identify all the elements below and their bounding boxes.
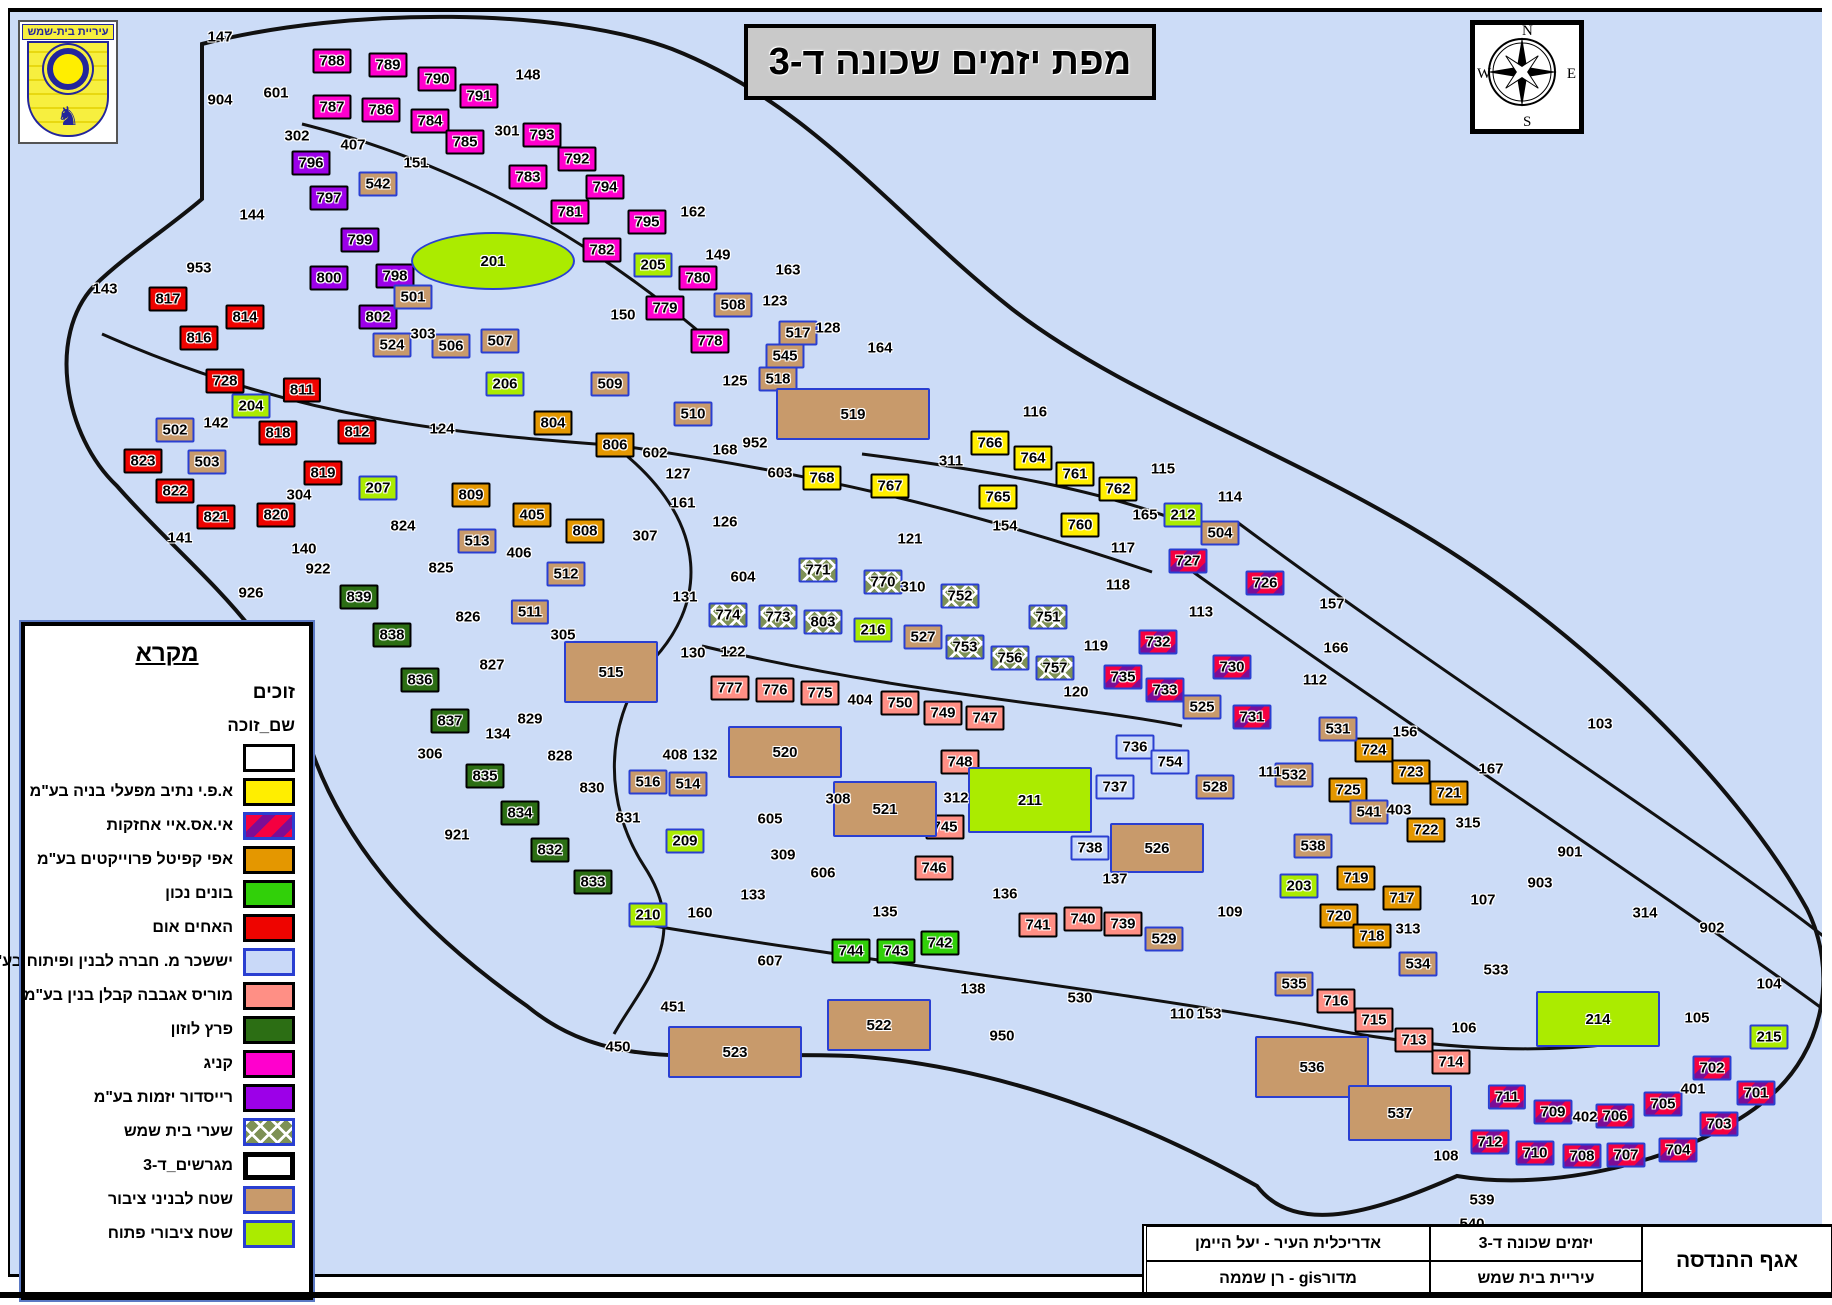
parcel-771: 771 (798, 558, 837, 583)
parcel-517: 517 (778, 321, 817, 346)
parcel-736: 736 (1115, 735, 1154, 760)
parcel-118: 118 (1106, 576, 1130, 595)
parcel-764: 764 (1013, 446, 1052, 471)
parcel-732: 732 (1138, 630, 1177, 655)
parcel-510: 510 (673, 402, 712, 427)
parcel-792: 792 (557, 147, 596, 172)
parcel-839: 839 (339, 585, 378, 610)
parcel-754: 754 (1150, 750, 1189, 775)
parcel-706: 706 (1595, 1104, 1634, 1129)
legend-entry-label: רייסדור יזמות בע"מ (94, 1089, 233, 1107)
parcel-119: 119 (1084, 637, 1108, 656)
parcel-952: 952 (742, 434, 767, 453)
parcel-716: 716 (1316, 989, 1355, 1014)
parcel-901: 901 (1557, 843, 1582, 862)
municipality-logo-caption: עיריית בית-שמש (22, 24, 114, 40)
parcel-606: 606 (810, 864, 835, 883)
legend-entry: שערי בית שמש (39, 1118, 295, 1146)
parcel-701: 701 (1736, 1081, 1775, 1106)
parcel-806: 806 (595, 433, 634, 458)
parcel-302: 302 (284, 127, 309, 146)
parcel-779: 779 (645, 296, 684, 321)
parcel-147: 147 (207, 28, 232, 47)
parcel-787: 787 (312, 95, 351, 120)
parcel-830: 830 (579, 779, 604, 798)
legend-entry-label: האחים אום (152, 919, 233, 937)
parcel-450: 450 (605, 1038, 630, 1057)
parcel-833: 833 (573, 870, 612, 895)
parcel-817: 817 (148, 287, 187, 312)
parcel-605: 605 (757, 810, 782, 829)
parcel-757: 757 (1035, 656, 1074, 681)
parcel-403: 403 (1386, 801, 1411, 820)
parcel-509: 509 (590, 372, 629, 397)
parcel-149: 149 (705, 246, 730, 265)
parcel-402: 402 (1572, 1108, 1597, 1127)
parcel-747: 747 (965, 706, 1004, 731)
legend-field-label: שם_זוכה (39, 716, 295, 736)
parcel-115: 115 (1151, 460, 1175, 479)
parcel-168: 168 (712, 441, 737, 460)
parcel-303: 303 (410, 325, 435, 344)
parcel-140: 140 (291, 540, 316, 559)
parcel-507: 507 (480, 329, 519, 354)
parcel-709: 709 (1533, 1100, 1572, 1125)
legend-entry-label: אי.אס.איי אחזקות (107, 817, 233, 835)
parcel-545: 545 (765, 344, 804, 369)
parcel-782: 782 (582, 238, 621, 263)
parcel-143: 143 (92, 280, 117, 299)
parcel-926: 926 (238, 584, 263, 603)
parcel-312: 312 (943, 789, 968, 808)
parcel-519: 519 (776, 388, 930, 440)
parcel-516: 516 (628, 770, 667, 795)
parcel-204: 204 (231, 394, 270, 419)
parcel-781: 781 (550, 200, 589, 225)
parcel-903: 903 (1527, 874, 1552, 893)
parcel-311: 311 (939, 452, 963, 471)
parcel-513: 513 (457, 529, 496, 554)
parcel-530: 530 (1067, 989, 1092, 1008)
parcel-723: 723 (1391, 760, 1430, 785)
parcel-768: 768 (802, 466, 841, 491)
parcel-767: 767 (870, 474, 909, 499)
parcel-148: 148 (515, 66, 540, 85)
parcel-515: 515 (564, 641, 658, 703)
compass-e: E (1567, 66, 1576, 83)
parcel-823: 823 (123, 449, 162, 474)
legend-entry: קניג (39, 1050, 295, 1078)
parcel-105: 105 (1684, 1009, 1709, 1028)
parcel-744: 744 (831, 939, 870, 964)
parcel-724: 724 (1354, 738, 1393, 763)
parcel-604: 604 (730, 568, 755, 587)
parcel-307: 307 (632, 527, 657, 546)
parcel-713: 713 (1394, 1028, 1433, 1053)
legend-swatch-ib (243, 948, 295, 976)
title-block-gis: מדורgis - רן שממה (1146, 1261, 1430, 1296)
parcel-760: 760 (1060, 513, 1099, 538)
legend-swatch-blank (243, 744, 295, 772)
parcel-537: 537 (1348, 1085, 1452, 1141)
parcel-103: 103 (1587, 715, 1612, 734)
parcel-165: 165 (1132, 506, 1157, 525)
parcel-154: 154 (992, 517, 1017, 536)
parcel-707: 707 (1606, 1143, 1645, 1168)
compass-s: S (1523, 114, 1531, 131)
sun-icon (47, 48, 89, 90)
parcel-803: 803 (803, 610, 842, 635)
parcel-106: 106 (1451, 1019, 1476, 1038)
parcel-151: 151 (403, 154, 428, 173)
parcel-728: 728 (205, 369, 244, 394)
legend-entry: פרץ לוזון (39, 1016, 295, 1044)
parcel-753: 753 (945, 635, 984, 660)
map-canvas: 7887897907917877867847857937927837947817… (8, 8, 1822, 1277)
parcel-206: 206 (485, 372, 524, 397)
parcel-451: 451 (660, 998, 685, 1017)
parcel-816: 816 (179, 326, 218, 351)
parcel-163: 163 (775, 261, 800, 280)
parcel-746: 746 (914, 856, 953, 881)
parcel-116: 116 (1023, 403, 1047, 422)
parcel-164: 164 (867, 339, 892, 358)
emblem-figures-icon: ♞ (56, 103, 79, 129)
legend: מקרא זוכים שם_זוכה א.פ.י נתיב מפעלי בניה… (21, 622, 313, 1300)
parcel-309: 309 (770, 846, 795, 865)
parcel-160: 160 (687, 904, 712, 923)
legend-swatch-os (243, 1220, 295, 1248)
legend-entry: מוריס אגבבה קבלן בנין בע"מ (39, 982, 295, 1010)
parcel-834: 834 (500, 801, 539, 826)
legend-swatch-plots (243, 1152, 295, 1180)
parcel-797: 797 (309, 186, 348, 211)
parcel-525: 525 (1182, 695, 1221, 720)
legend-entry-label: בונים נכון (165, 885, 233, 903)
legend-entry: אי.אס.איי אחזקות (39, 812, 295, 840)
parcel-528: 528 (1195, 775, 1234, 800)
parcel-822: 822 (155, 479, 194, 504)
parcel-796: 796 (291, 151, 330, 176)
parcel-150: 150 (610, 306, 635, 325)
parcel-538: 538 (1293, 834, 1332, 859)
parcel-773: 773 (758, 605, 797, 630)
parcel-314: 314 (1632, 904, 1657, 923)
parcel-529: 529 (1144, 927, 1183, 952)
title-block-department: אגף ההנדסה (1642, 1226, 1832, 1296)
parcel-825: 825 (428, 559, 453, 578)
parcel-828: 828 (547, 747, 572, 766)
parcel-733: 733 (1145, 678, 1184, 703)
parcel-511: 511 (511, 600, 549, 625)
parcel-215: 215 (1749, 1025, 1788, 1050)
parcel-523: 523 (668, 1026, 802, 1078)
parcel-824: 824 (390, 517, 415, 536)
legend-entry: האחים אום (39, 914, 295, 942)
parcel-804: 804 (533, 411, 572, 436)
title-block-architect: אדריכלית העיר - יעל היימן (1146, 1226, 1430, 1261)
parcel-539: 539 (1469, 1191, 1494, 1210)
legend-entry: מגרשים_ד-3 (39, 1152, 295, 1180)
legend-entry-label: קניג (203, 1055, 233, 1073)
parcel-504: 504 (1200, 521, 1239, 546)
legend-swatch-dg (243, 1016, 295, 1044)
parcel-743: 743 (876, 939, 915, 964)
parcel-766: 766 (970, 431, 1009, 456)
parcel-775: 775 (800, 681, 839, 706)
parcel-836: 836 (400, 668, 439, 693)
parcel-113: 113 (1189, 603, 1213, 622)
parcel-542: 542 (358, 172, 397, 197)
parcel-503: 503 (187, 450, 226, 475)
parcel-774: 774 (708, 603, 747, 628)
parcel-133: 133 (740, 886, 765, 905)
compass-rose: N E S W (1470, 20, 1584, 134)
parcel-407: 407 (340, 136, 365, 155)
parcel-831: 831 (615, 809, 640, 828)
parcel-512: 512 (546, 562, 585, 587)
parcel-756: 756 (990, 646, 1029, 671)
parcel-739: 739 (1103, 912, 1142, 937)
parcel-721: 721 (1429, 781, 1468, 806)
parcel-808: 808 (565, 519, 604, 544)
parcel-819: 819 (303, 461, 342, 486)
parcel-111: 111 (1258, 763, 1281, 782)
compass-n: N (1522, 23, 1533, 40)
legend-swatch-red (243, 914, 295, 942)
parcel-142: 142 (203, 414, 228, 433)
parcel-953: 953 (186, 259, 211, 278)
parcel-601: 601 (263, 84, 288, 103)
parcel-107: 107 (1470, 891, 1495, 910)
legend-entry-label: יששכר מ. חברה לבנין ופיתוח בע"מ (0, 953, 233, 971)
parcel-526: 526 (1110, 823, 1204, 873)
parcel-812: 812 (337, 420, 376, 445)
parcel-711: 711 (1488, 1085, 1526, 1110)
parcel-714: 714 (1431, 1050, 1470, 1075)
parcel-740: 740 (1063, 907, 1102, 932)
map-title-box: מפת יזמים שכונה ד-3 (744, 24, 1156, 100)
parcel-731: 731 (1232, 705, 1271, 730)
parcel-541: 541 (1349, 800, 1388, 825)
parcel-405: 405 (512, 503, 551, 528)
municipality-shield-icon: ♞ (27, 41, 109, 137)
parcel-210: 210 (628, 903, 667, 928)
parcel-310: 310 (900, 578, 925, 597)
parcel-602: 602 (642, 444, 667, 463)
legend-swatch-pur (243, 1084, 295, 1112)
legend-entry: יששכר מ. חברה לבנין ופיתוח בע"מ (39, 948, 295, 976)
parcel-104: 104 (1756, 975, 1781, 994)
legend-title: מקרא (39, 640, 295, 668)
parcel-788: 788 (312, 49, 351, 74)
parcel-506: 506 (431, 334, 470, 359)
parcel-715: 715 (1354, 1008, 1393, 1033)
parcel-778: 778 (690, 329, 729, 354)
parcel-308: 308 (825, 790, 850, 809)
parcel-114: 114 (1218, 488, 1242, 507)
parcel-832: 832 (530, 838, 569, 863)
parcel-783: 783 (508, 165, 547, 190)
legend-swatch-ye (243, 778, 295, 806)
parcel-821: 821 (196, 505, 235, 530)
parcel-785: 785 (445, 130, 484, 155)
parcel-301: 301 (494, 122, 519, 141)
legend-swatch-sa (243, 982, 295, 1010)
parcel-501: 501 (393, 285, 432, 310)
parcel-216: 216 (853, 618, 892, 643)
parcel-712: 712 (1470, 1130, 1509, 1155)
parcel-117: 117 (1111, 539, 1135, 558)
parcel-132: 132 (692, 746, 717, 765)
parcel-305: 305 (550, 626, 575, 645)
parcel-603: 603 (767, 464, 792, 483)
parcel-607: 607 (757, 952, 782, 971)
parcel-127: 127 (665, 465, 690, 484)
parcel-800: 800 (309, 266, 348, 291)
parcel-112: 112 (1303, 671, 1327, 690)
parcel-738: 738 (1070, 836, 1109, 861)
parcel-315: 315 (1455, 814, 1480, 833)
parcel-786: 786 (361, 98, 400, 123)
parcel-157: 157 (1319, 595, 1344, 614)
parcel-751: 751 (1028, 605, 1067, 630)
legend-entry: שטח לבניני ציבור (39, 1186, 295, 1214)
parcel-205: 205 (633, 253, 672, 278)
parcel-408: 408 (662, 746, 687, 765)
parcel-508: 508 (713, 293, 752, 318)
parcel-718: 718 (1352, 924, 1391, 949)
parcel-717: 717 (1382, 886, 1421, 911)
parcel-762: 762 (1098, 477, 1137, 502)
parcel-780: 780 (678, 266, 717, 291)
parcel-950: 950 (989, 1027, 1014, 1046)
parcel-167: 167 (1478, 760, 1503, 779)
parcel-735: 735 (1103, 665, 1142, 690)
legend-entry-label: שטח לבניני ציבור (108, 1191, 233, 1209)
parcel-125: 125 (722, 372, 747, 391)
parcel-134: 134 (485, 725, 510, 744)
parcel-777: 777 (710, 676, 749, 701)
parcel-524: 524 (372, 333, 411, 358)
parcel-703: 703 (1699, 1112, 1738, 1137)
parcel-741: 741 (1018, 913, 1057, 938)
parcel-811: 811 (283, 378, 321, 403)
compass-w: W (1477, 66, 1491, 83)
legend-entry: בונים נכון (39, 880, 295, 908)
parcel-837: 837 (430, 709, 469, 734)
parcel-531: 531 (1318, 717, 1357, 742)
parcel-522: 522 (827, 999, 931, 1051)
legend-entry-label: שטח ציבורי פתוח (108, 1225, 233, 1243)
parcel-121: 121 (897, 530, 922, 549)
parcel-214: 214 (1536, 991, 1660, 1047)
parcel-814: 814 (225, 305, 264, 330)
parcel-130: 130 (680, 644, 705, 663)
legend-entry: רייסדור יזמות בע"מ (39, 1084, 295, 1112)
parcel-128: 128 (815, 319, 840, 338)
parcel-535: 535 (1274, 972, 1313, 997)
parcel-829: 829 (517, 710, 542, 729)
parcel-702: 702 (1692, 1056, 1731, 1081)
legend-entry-label: פרץ לוזון (171, 1021, 233, 1039)
map-sheet: 7887897907917877867847857937927837947817… (0, 0, 1832, 1305)
parcel-761: 761 (1055, 462, 1094, 487)
parcel-835: 835 (465, 764, 504, 789)
parcel-502: 502 (155, 418, 194, 443)
parcel-789: 789 (368, 53, 407, 78)
parcel-827: 827 (479, 656, 504, 675)
parcel-794: 794 (585, 175, 624, 200)
legend-swatch-cr (243, 812, 295, 840)
parcel-752: 752 (940, 584, 979, 609)
parcel-209: 209 (665, 829, 704, 854)
parcel-727: 727 (1168, 549, 1207, 574)
parcel-126: 126 (712, 513, 737, 532)
parcel-534: 534 (1398, 952, 1437, 977)
parcel-719: 719 (1336, 866, 1375, 891)
parcel-137: 137 (1102, 870, 1127, 889)
legend-entry-label: אפי קפיטל פרוייקטים בע"מ (37, 851, 233, 869)
parcel-514: 514 (668, 772, 707, 797)
parcel-533: 533 (1483, 961, 1508, 980)
parcel-313: 313 (1395, 920, 1420, 939)
title-block-project: יזמים שכונה ד-3 (1430, 1226, 1642, 1261)
parcel-838: 838 (372, 623, 411, 648)
parcel-162: 162 (680, 203, 705, 222)
parcel-110: 110 (1170, 1005, 1194, 1024)
parcel-802: 802 (358, 305, 397, 330)
parcel-921: 921 (444, 826, 469, 845)
parcel-122: 122 (720, 643, 745, 662)
parcel-306: 306 (417, 745, 442, 764)
parcel-108: 108 (1433, 1147, 1458, 1166)
parcel-527: 527 (903, 625, 942, 650)
parcel-406: 406 (506, 544, 531, 563)
parcel-708: 708 (1562, 1144, 1601, 1169)
parcel-710: 710 (1515, 1141, 1554, 1166)
parcel-136: 136 (992, 885, 1017, 904)
parcel-750: 750 (880, 691, 919, 716)
parcel-124: 124 (429, 420, 454, 439)
legend-entry: א.פ.י נתיב מפעלי בניה בע"מ (39, 778, 295, 806)
parcel-120: 120 (1063, 683, 1088, 702)
parcel-135: 135 (872, 903, 897, 922)
parcel-749: 749 (923, 701, 962, 726)
legend-swatch-sh (243, 1118, 295, 1146)
parcel-784: 784 (410, 109, 449, 134)
title-block-municipality: עיריית בית שמש (1430, 1261, 1642, 1296)
parcel-123: 123 (762, 292, 787, 311)
parcel-201: 201 (411, 232, 575, 290)
legend-swatch-mag (243, 1050, 295, 1078)
bottom-rule (0, 1292, 1832, 1298)
parcel-166: 166 (1323, 639, 1348, 658)
parcel-730: 730 (1212, 655, 1251, 680)
parcel-704: 704 (1658, 1138, 1697, 1163)
legend-swatch-ta (243, 1186, 295, 1214)
parcel-153: 153 (1196, 1005, 1221, 1024)
parcel-520: 520 (728, 726, 842, 778)
parcel-776: 776 (755, 678, 794, 703)
parcel-742: 742 (920, 931, 959, 956)
parcel-131: 131 (672, 588, 697, 607)
parcel-770: 770 (863, 570, 902, 595)
parcel-109: 109 (1217, 903, 1242, 922)
legend-entry-label: מוריס אגבבה קבלן בנין בע"מ (24, 987, 233, 1005)
parcel-304: 304 (286, 486, 311, 505)
parcel-826: 826 (455, 608, 480, 627)
